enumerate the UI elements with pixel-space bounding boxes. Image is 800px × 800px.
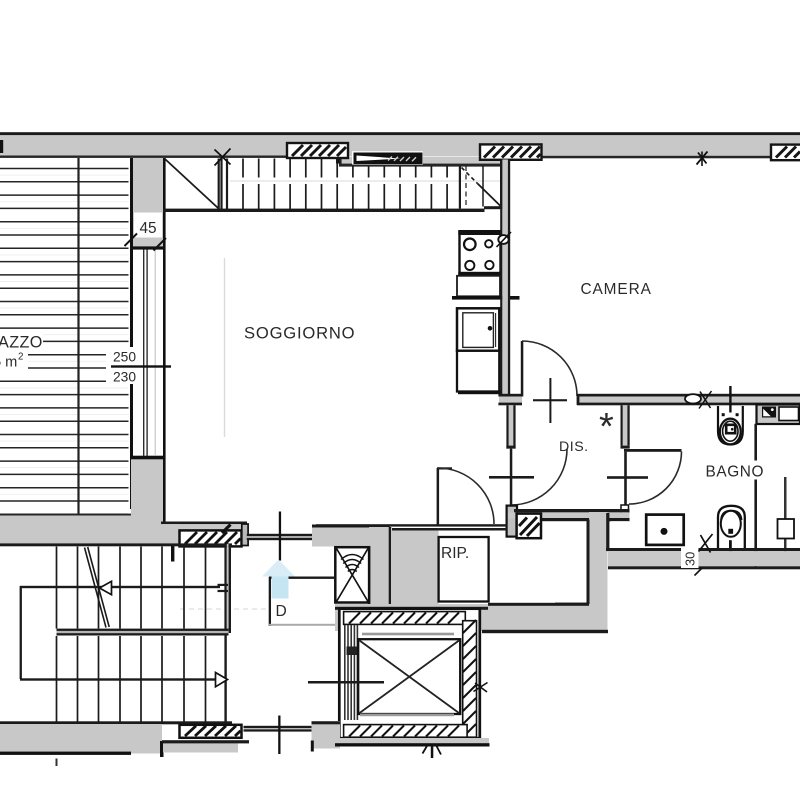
svg-text:SOGGIORNO: SOGGIORNO (244, 324, 355, 343)
svg-text:5 m: 5 m (0, 355, 17, 371)
svg-text:*: * (599, 406, 614, 448)
svg-text:230: 230 (113, 370, 136, 385)
svg-text:D: D (276, 603, 287, 620)
svg-text:45: 45 (139, 220, 156, 237)
svg-text:AZZO: AZZO (0, 334, 43, 352)
svg-text:CAMERA: CAMERA (581, 281, 652, 298)
svg-text:DIS.: DIS. (559, 439, 589, 455)
svg-text:250: 250 (113, 350, 136, 365)
svg-text:2: 2 (18, 352, 23, 363)
svg-text:RIP.: RIP. (441, 545, 469, 562)
svg-text:BAGNO: BAGNO (706, 464, 765, 481)
svg-text:30: 30 (683, 552, 698, 566)
